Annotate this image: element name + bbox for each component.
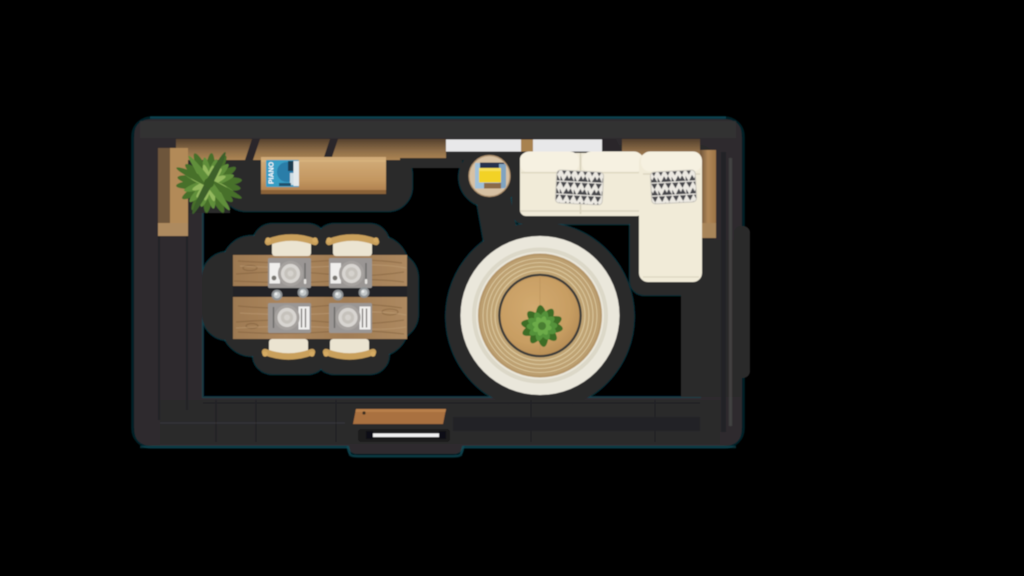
svg-text:PIANO: PIANO: [269, 161, 276, 184]
